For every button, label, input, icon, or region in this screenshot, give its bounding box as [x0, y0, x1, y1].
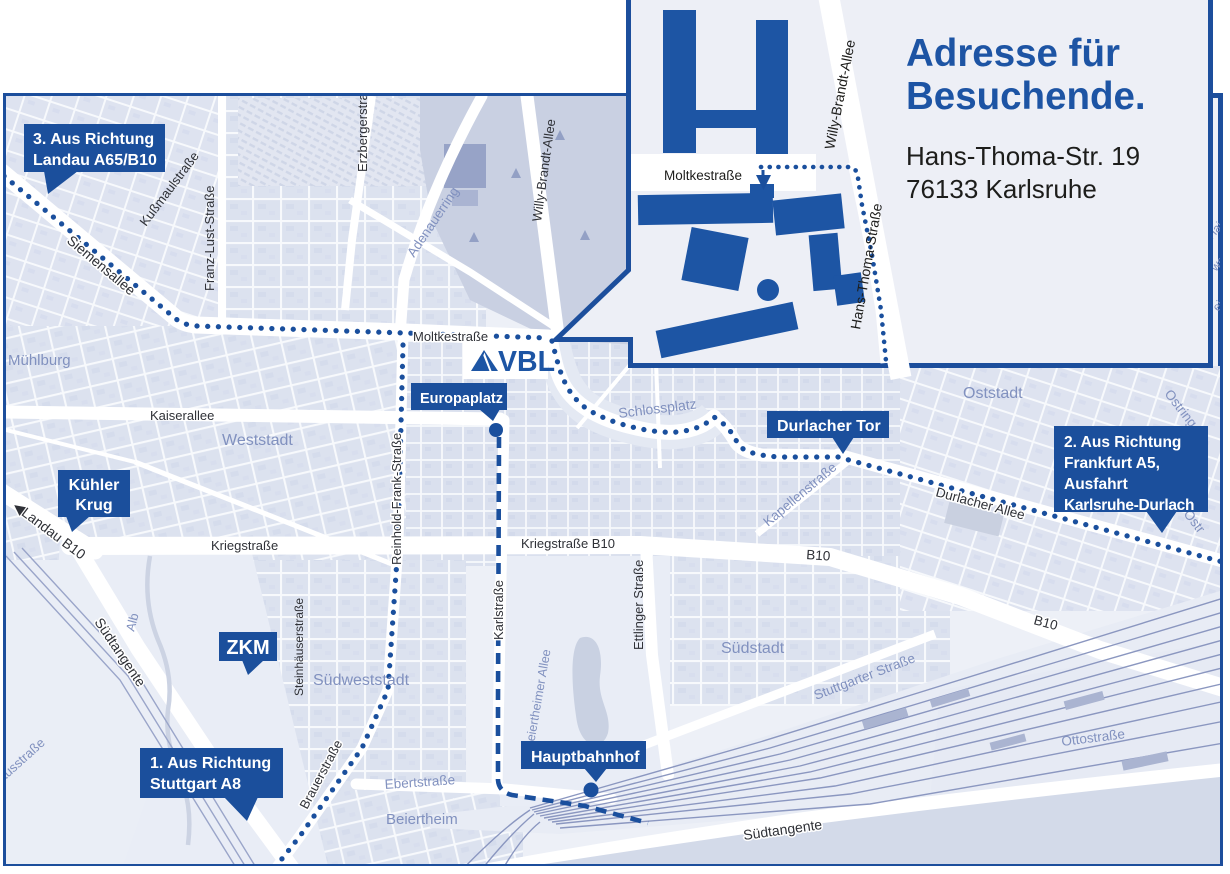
svg-text:Franz-Lust-Straße: Franz-Lust-Straße	[202, 186, 217, 291]
svg-text:Weststadt: Weststadt	[222, 432, 293, 449]
svg-text:Hauptbahnhof: Hauptbahnhof	[531, 749, 640, 766]
svg-text:Landau A65/B10: Landau A65/B10	[33, 152, 157, 169]
svg-text:1. Aus Richtung: 1. Aus Richtung	[150, 755, 271, 772]
svg-text:Hans-Thoma-Str. 19: Hans-Thoma-Str. 19	[906, 141, 1140, 171]
svg-text:Kriegstraße B10: Kriegstraße B10	[521, 536, 615, 551]
svg-text:Karlstraße: Karlstraße	[491, 580, 506, 640]
svg-text:Steinhäuserstraße: Steinhäuserstraße	[292, 598, 306, 696]
svg-text:Adresse für: Adresse für	[906, 32, 1120, 75]
svg-text:Frankfurt A5,: Frankfurt A5,	[1064, 455, 1160, 472]
svg-text:Beiertheim: Beiertheim	[386, 811, 458, 828]
svg-text:Durlacher Tor: Durlacher Tor	[777, 418, 881, 435]
svg-text:Moltkestraße: Moltkestraße	[664, 168, 742, 183]
svg-text:Südstadt: Südstadt	[721, 640, 785, 657]
svg-text:ZKM: ZKM	[226, 637, 269, 659]
svg-text:3. Aus Richtung: 3. Aus Richtung	[33, 131, 154, 148]
svg-text:76133 Karlsruhe: 76133 Karlsruhe	[906, 174, 1097, 204]
svg-text:Mühlburg: Mühlburg	[8, 352, 71, 369]
svg-text:Ettlinger Straße: Ettlinger Straße	[631, 560, 646, 650]
svg-text:Karlsruhe-Durlach: Karlsruhe-Durlach	[1064, 497, 1194, 514]
svg-text:Oststadt: Oststadt	[963, 385, 1023, 402]
svg-text:Reinhold-Frank-Straße: Reinhold-Frank-Straße	[389, 433, 404, 565]
svg-text:Kaiserallee: Kaiserallee	[150, 408, 214, 423]
svg-text:VBL: VBL	[498, 346, 555, 378]
svg-text:Europaplatz: Europaplatz	[420, 391, 503, 407]
svg-text:Moltkestraße: Moltkestraße	[413, 329, 488, 344]
svg-text:Krug: Krug	[75, 497, 112, 514]
svg-text:Südweststadt: Südweststadt	[313, 672, 410, 689]
svg-text:Stuttgart A8: Stuttgart A8	[150, 776, 241, 793]
svg-text:B10: B10	[806, 547, 831, 564]
svg-text:Ausfahrt: Ausfahrt	[1064, 476, 1128, 493]
svg-text:Kühler: Kühler	[69, 477, 120, 494]
svg-text:2. Aus Richtung: 2. Aus Richtung	[1064, 434, 1181, 451]
svg-text:Besuchende.: Besuchende.	[906, 75, 1146, 118]
svg-text:Kriegstraße: Kriegstraße	[211, 538, 278, 553]
